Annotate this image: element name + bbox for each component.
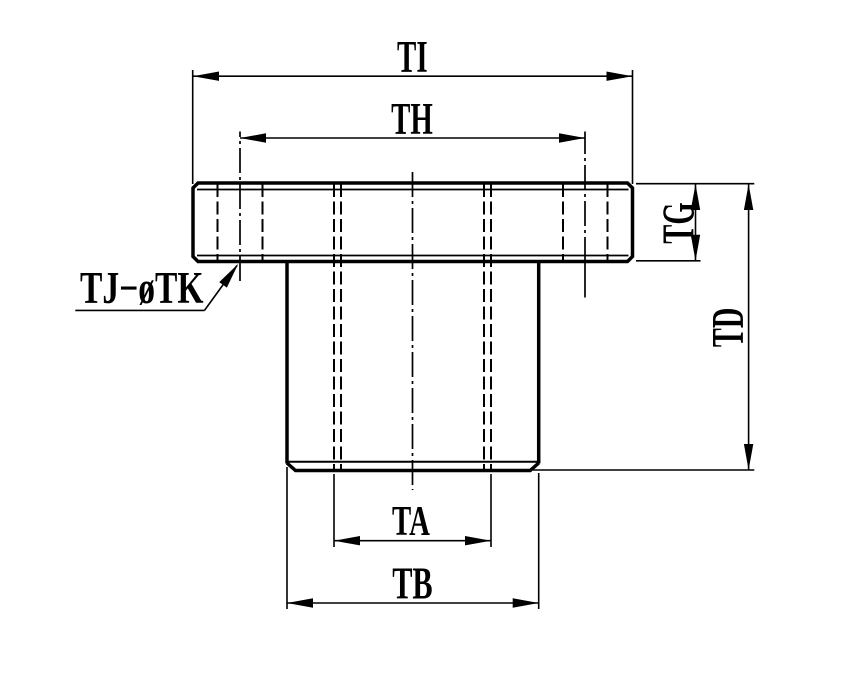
svg-text:TD: TD — [703, 308, 753, 348]
svg-text:TA: TA — [392, 499, 430, 545]
svg-text:TI: TI — [397, 32, 428, 82]
svg-text:TB: TB — [392, 559, 432, 609]
svg-text:TH: TH — [391, 94, 433, 144]
svg-text:TJ−øTK: TJ−øTK — [80, 263, 204, 313]
svg-text:TG: TG — [654, 202, 704, 243]
